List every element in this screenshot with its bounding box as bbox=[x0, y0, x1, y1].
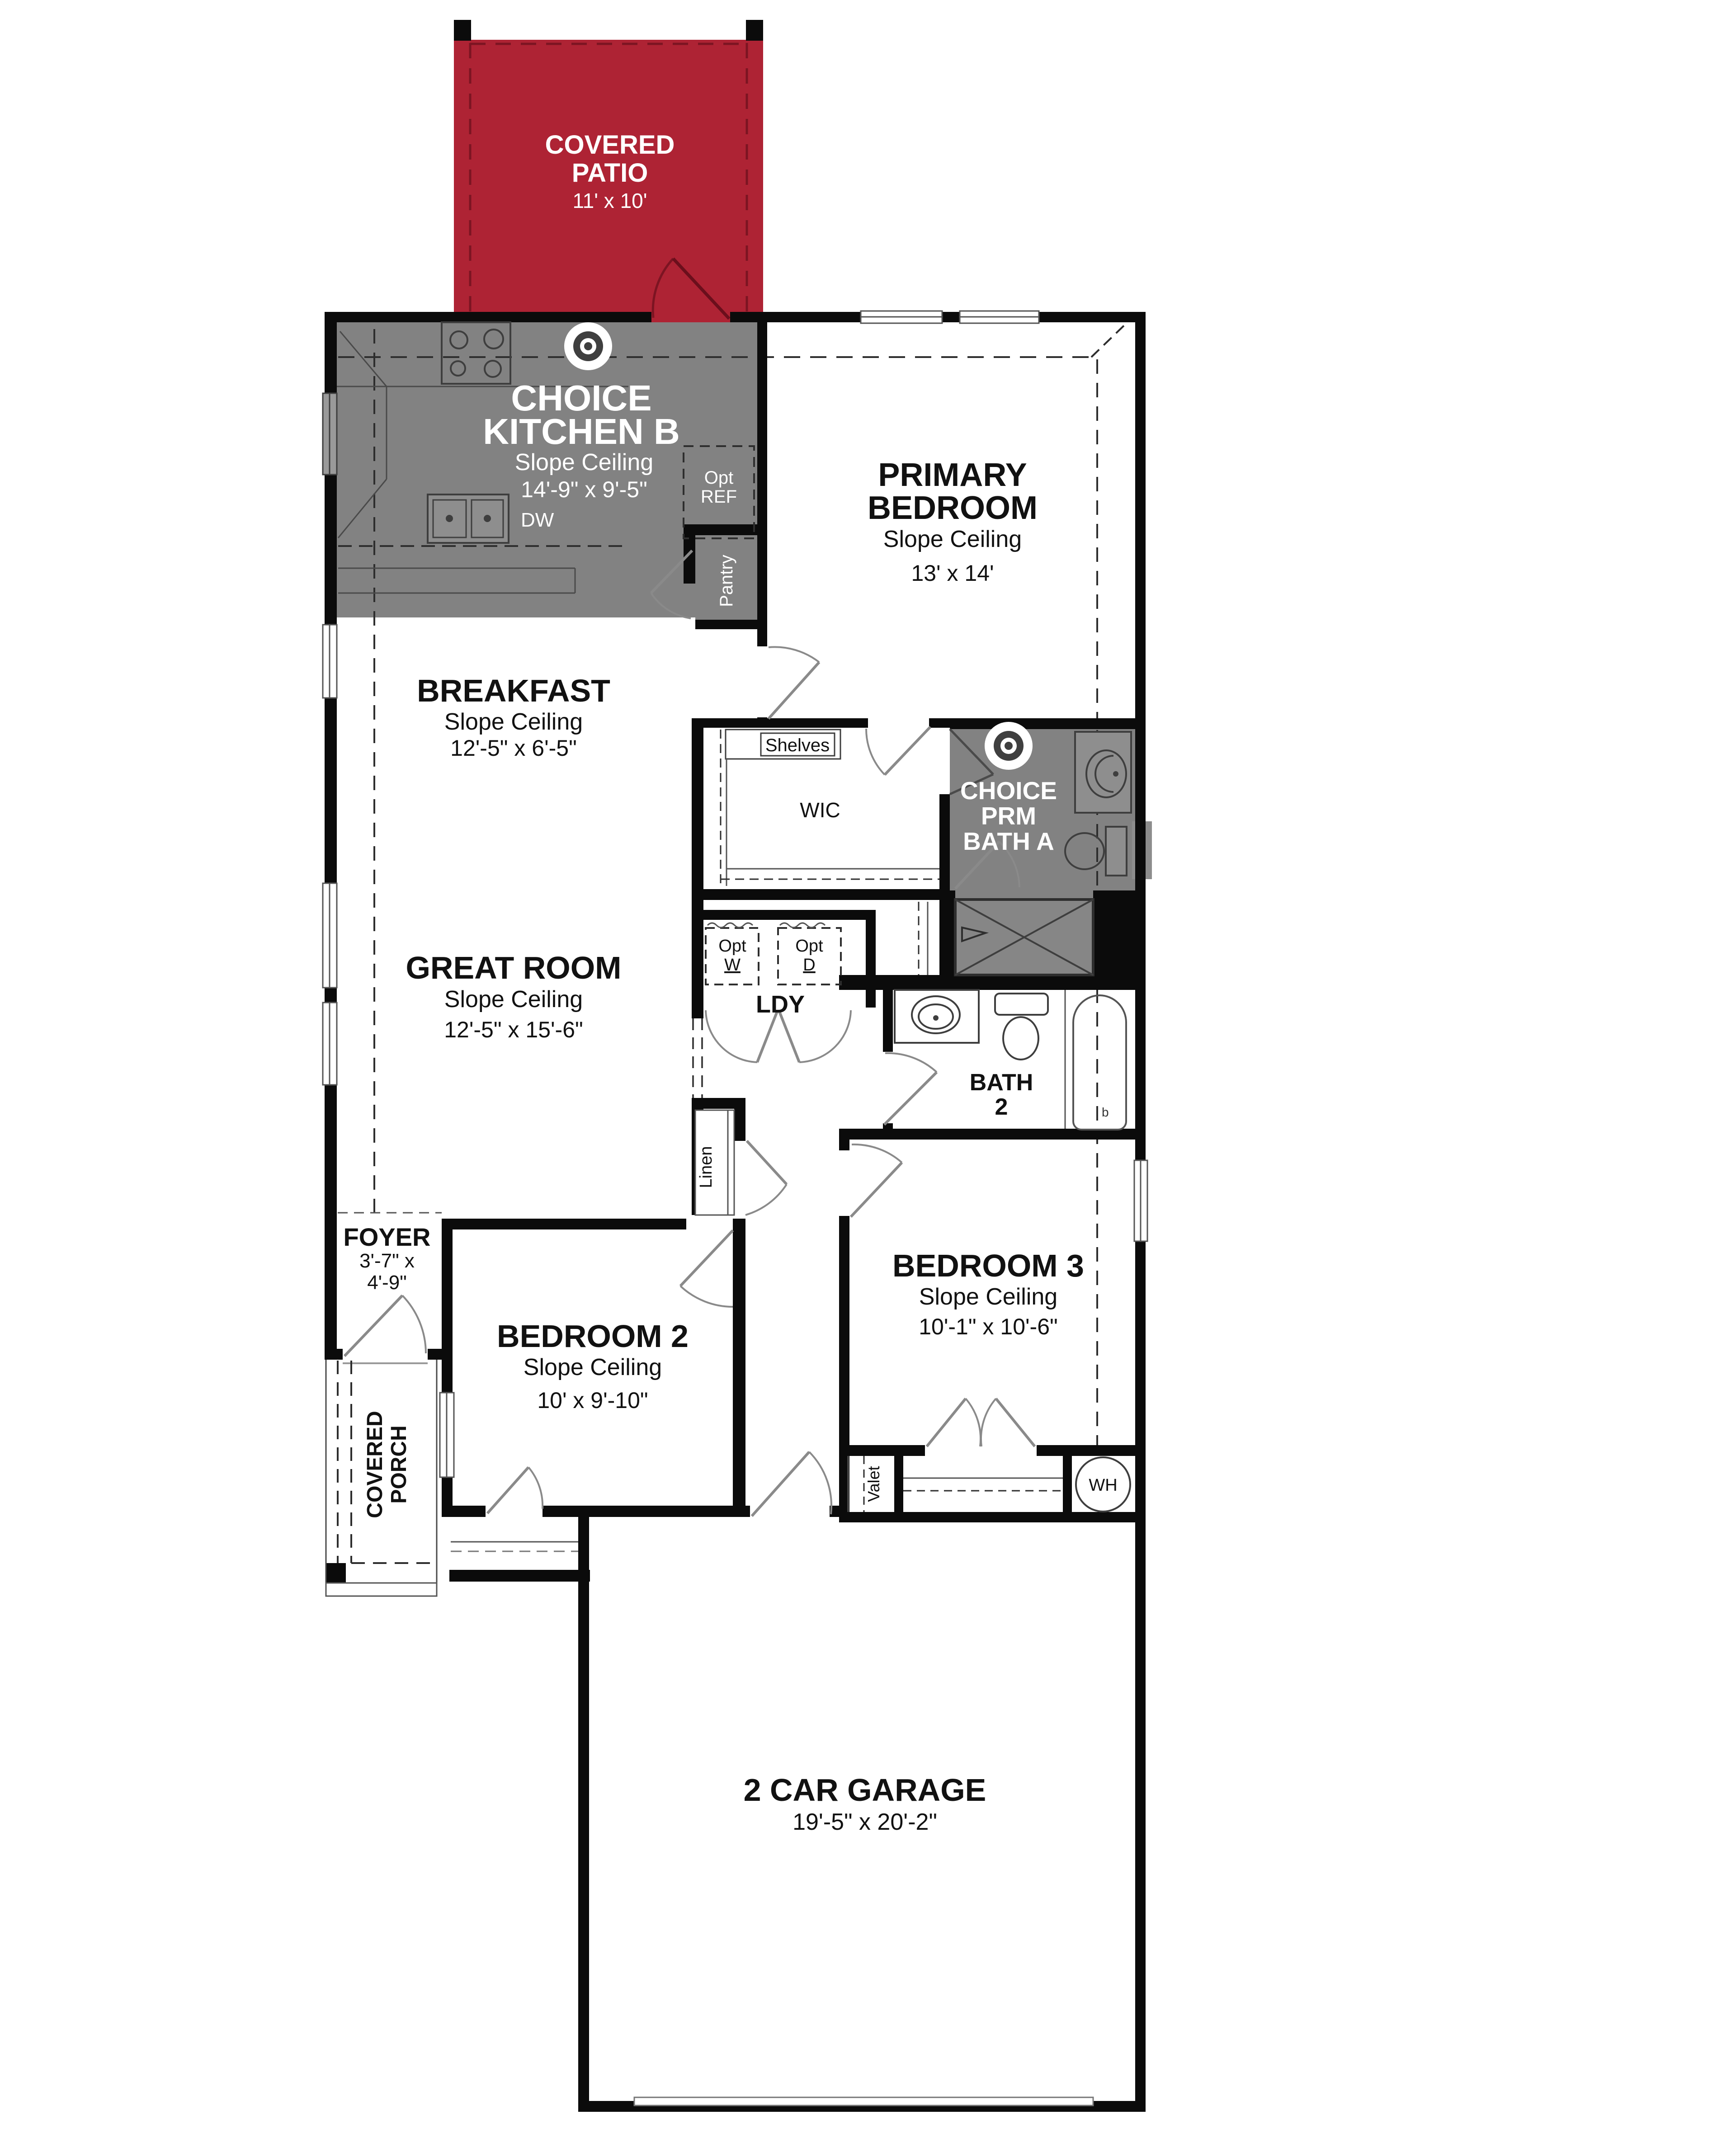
svg-text:Pantry: Pantry bbox=[717, 555, 736, 607]
svg-text:Opt: Opt bbox=[718, 937, 746, 956]
svg-text:BEDROOM 2: BEDROOM 2 bbox=[497, 1319, 689, 1354]
svg-text:GREAT ROOM: GREAT ROOM bbox=[406, 950, 621, 985]
svg-text:BEDROOM 3: BEDROOM 3 bbox=[892, 1248, 1084, 1283]
svg-text:Slope Ceiling: Slope Ceiling bbox=[883, 526, 1022, 552]
svg-text:COVERED: COVERED bbox=[545, 130, 675, 160]
svg-text:WH: WH bbox=[1089, 1476, 1117, 1495]
svg-text:2 CAR GARAGE: 2 CAR GARAGE bbox=[744, 1772, 986, 1808]
svg-text:Opt: Opt bbox=[704, 468, 733, 488]
svg-text:BATH: BATH bbox=[970, 1069, 1033, 1096]
svg-text:Valet: Valet bbox=[864, 1466, 883, 1502]
svg-text:10' x 9'-10": 10' x 9'-10" bbox=[537, 1388, 648, 1413]
svg-text:COVERED: COVERED bbox=[363, 1411, 387, 1518]
svg-text:12'-5" x 6'-5": 12'-5" x 6'-5" bbox=[450, 735, 577, 761]
svg-text:WIC: WIC bbox=[800, 798, 840, 822]
svg-text:PRM: PRM bbox=[981, 802, 1036, 830]
svg-text:REF: REF bbox=[701, 487, 737, 507]
svg-text:D: D bbox=[803, 956, 815, 975]
svg-text:PORCH: PORCH bbox=[387, 1425, 411, 1503]
svg-text:Shelves: Shelves bbox=[765, 735, 830, 755]
svg-text:11' x 10': 11' x 10' bbox=[572, 189, 647, 212]
svg-text:Slope Ceiling: Slope Ceiling bbox=[919, 1284, 1057, 1310]
svg-text:14'-9" x 9'-5": 14'-9" x 9'-5" bbox=[521, 477, 647, 502]
svg-text:BEDROOM: BEDROOM bbox=[868, 490, 1038, 526]
svg-text:13' x 14': 13' x 14' bbox=[911, 560, 994, 586]
svg-text:LDY: LDY bbox=[756, 991, 805, 1018]
svg-text:10'-1" x 10'-6": 10'-1" x 10'-6" bbox=[919, 1314, 1058, 1339]
svg-text:FOYER: FOYER bbox=[344, 1223, 431, 1251]
svg-text:BATH A: BATH A bbox=[963, 827, 1054, 855]
svg-text:Opt: Opt bbox=[795, 937, 823, 956]
svg-text:CHOICE: CHOICE bbox=[960, 777, 1057, 805]
svg-text:BREAKFAST: BREAKFAST bbox=[417, 673, 610, 708]
svg-text:PATIO: PATIO bbox=[572, 158, 648, 188]
svg-text:PRIMARY: PRIMARY bbox=[878, 457, 1027, 493]
svg-text:4'-9": 4'-9" bbox=[367, 1272, 407, 1294]
svg-text:KITCHEN B: KITCHEN B bbox=[483, 411, 680, 452]
svg-text:b: b bbox=[1102, 1105, 1109, 1119]
svg-text:W: W bbox=[724, 956, 741, 975]
svg-text:DW: DW bbox=[521, 509, 554, 531]
svg-text:Slope Ceiling: Slope Ceiling bbox=[444, 709, 583, 735]
svg-text:Slope Ceiling: Slope Ceiling bbox=[444, 986, 583, 1013]
svg-text:Slope Ceiling: Slope Ceiling bbox=[524, 1354, 662, 1380]
svg-text:3'-7" x: 3'-7" x bbox=[359, 1250, 415, 1272]
svg-text:12'-5" x 15'-6": 12'-5" x 15'-6" bbox=[444, 1017, 583, 1042]
svg-text:Linen: Linen bbox=[697, 1146, 716, 1188]
svg-text:Slope Ceiling: Slope Ceiling bbox=[515, 449, 653, 476]
svg-text:2: 2 bbox=[995, 1094, 1008, 1120]
svg-text:19'-5" x 20'-2": 19'-5" x 20'-2" bbox=[793, 1809, 937, 1835]
